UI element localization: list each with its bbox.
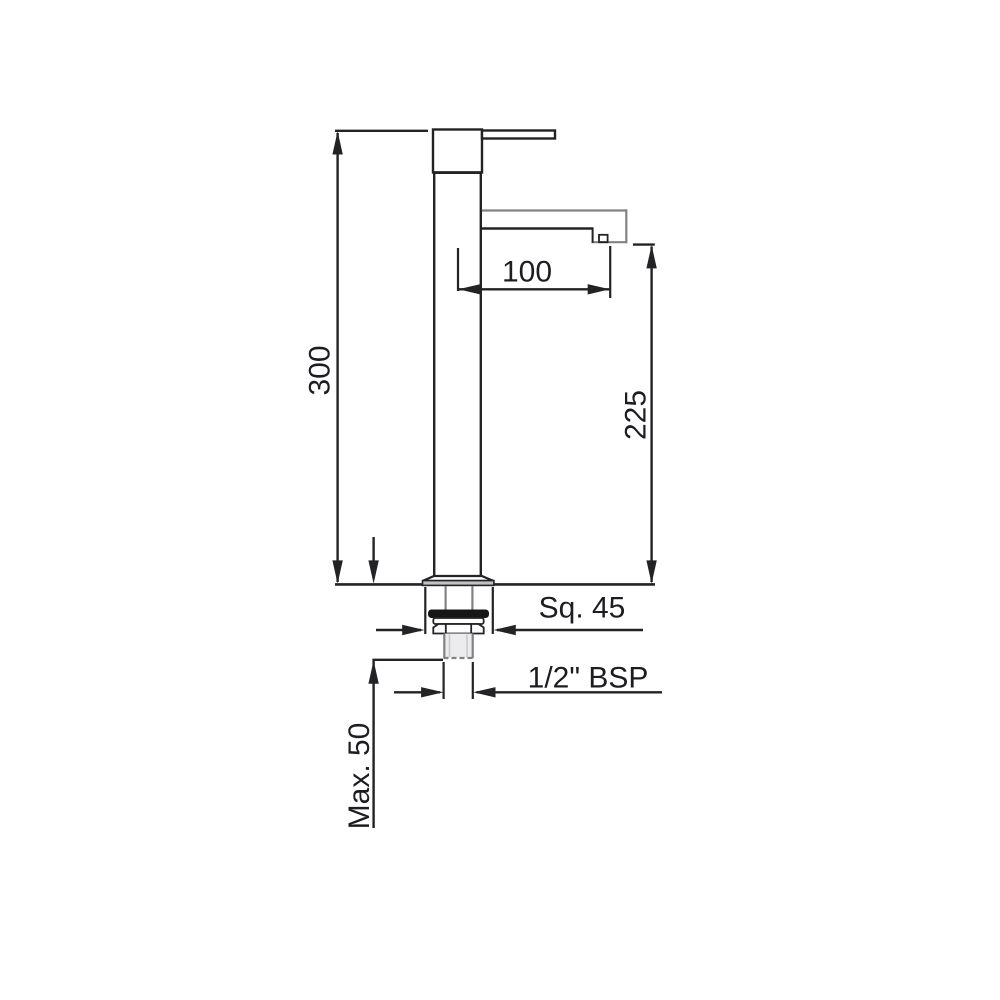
- faucet-figure: [335, 130, 655, 659]
- dim-225-arrow-up: [646, 245, 656, 268]
- dim-max50-arrow-up: [368, 661, 378, 684]
- locknut: [433, 624, 483, 634]
- handle-lever: [482, 131, 555, 139]
- dim-225-arrow-down: [646, 560, 656, 583]
- dim-100-arrow-right: [588, 284, 610, 294]
- dim-sq45-arrow-right: [402, 625, 424, 635]
- dim-bsp-arrow-right: [421, 687, 443, 697]
- dim-100-label: 100: [502, 256, 552, 289]
- dim-300-label: 300: [304, 345, 337, 395]
- rubber-washer: [428, 610, 489, 619]
- dim-225-label: 225: [620, 390, 653, 440]
- dim-thread-size: 1/2" BSP: [394, 662, 662, 700]
- dim-max50-arrow-down: [368, 560, 378, 583]
- dim-max50-label: Max. 50: [343, 723, 376, 830]
- base-flange-band: [423, 581, 494, 586]
- aerator-detail: [599, 235, 608, 242]
- threaded-shank-fill: [444, 634, 473, 659]
- dim-300-arrow-up: [332, 131, 342, 154]
- dim-bsp-label: 1/2" BSP: [528, 662, 649, 695]
- technical-drawing-page: 300 100 225 Sq. 45 1/2" BSP: [0, 0, 1000, 1000]
- faucet-dimension-drawing: 300 100 225 Sq. 45 1/2" BSP: [0, 0, 1000, 1000]
- dim-base-square: Sq. 45: [376, 587, 643, 635]
- dim-300-arrow-down: [332, 560, 342, 583]
- dim-sq45-arrow-left: [494, 625, 516, 635]
- dim-bsp-arrow-left: [473, 687, 495, 697]
- dim-100-arrow-left: [458, 284, 480, 294]
- dim-spout-height: 225: [620, 245, 657, 584]
- dim-overall-height: 300: [304, 131, 429, 584]
- dim-sq45-label: Sq. 45: [539, 592, 626, 625]
- cartridge-body: [433, 130, 482, 173]
